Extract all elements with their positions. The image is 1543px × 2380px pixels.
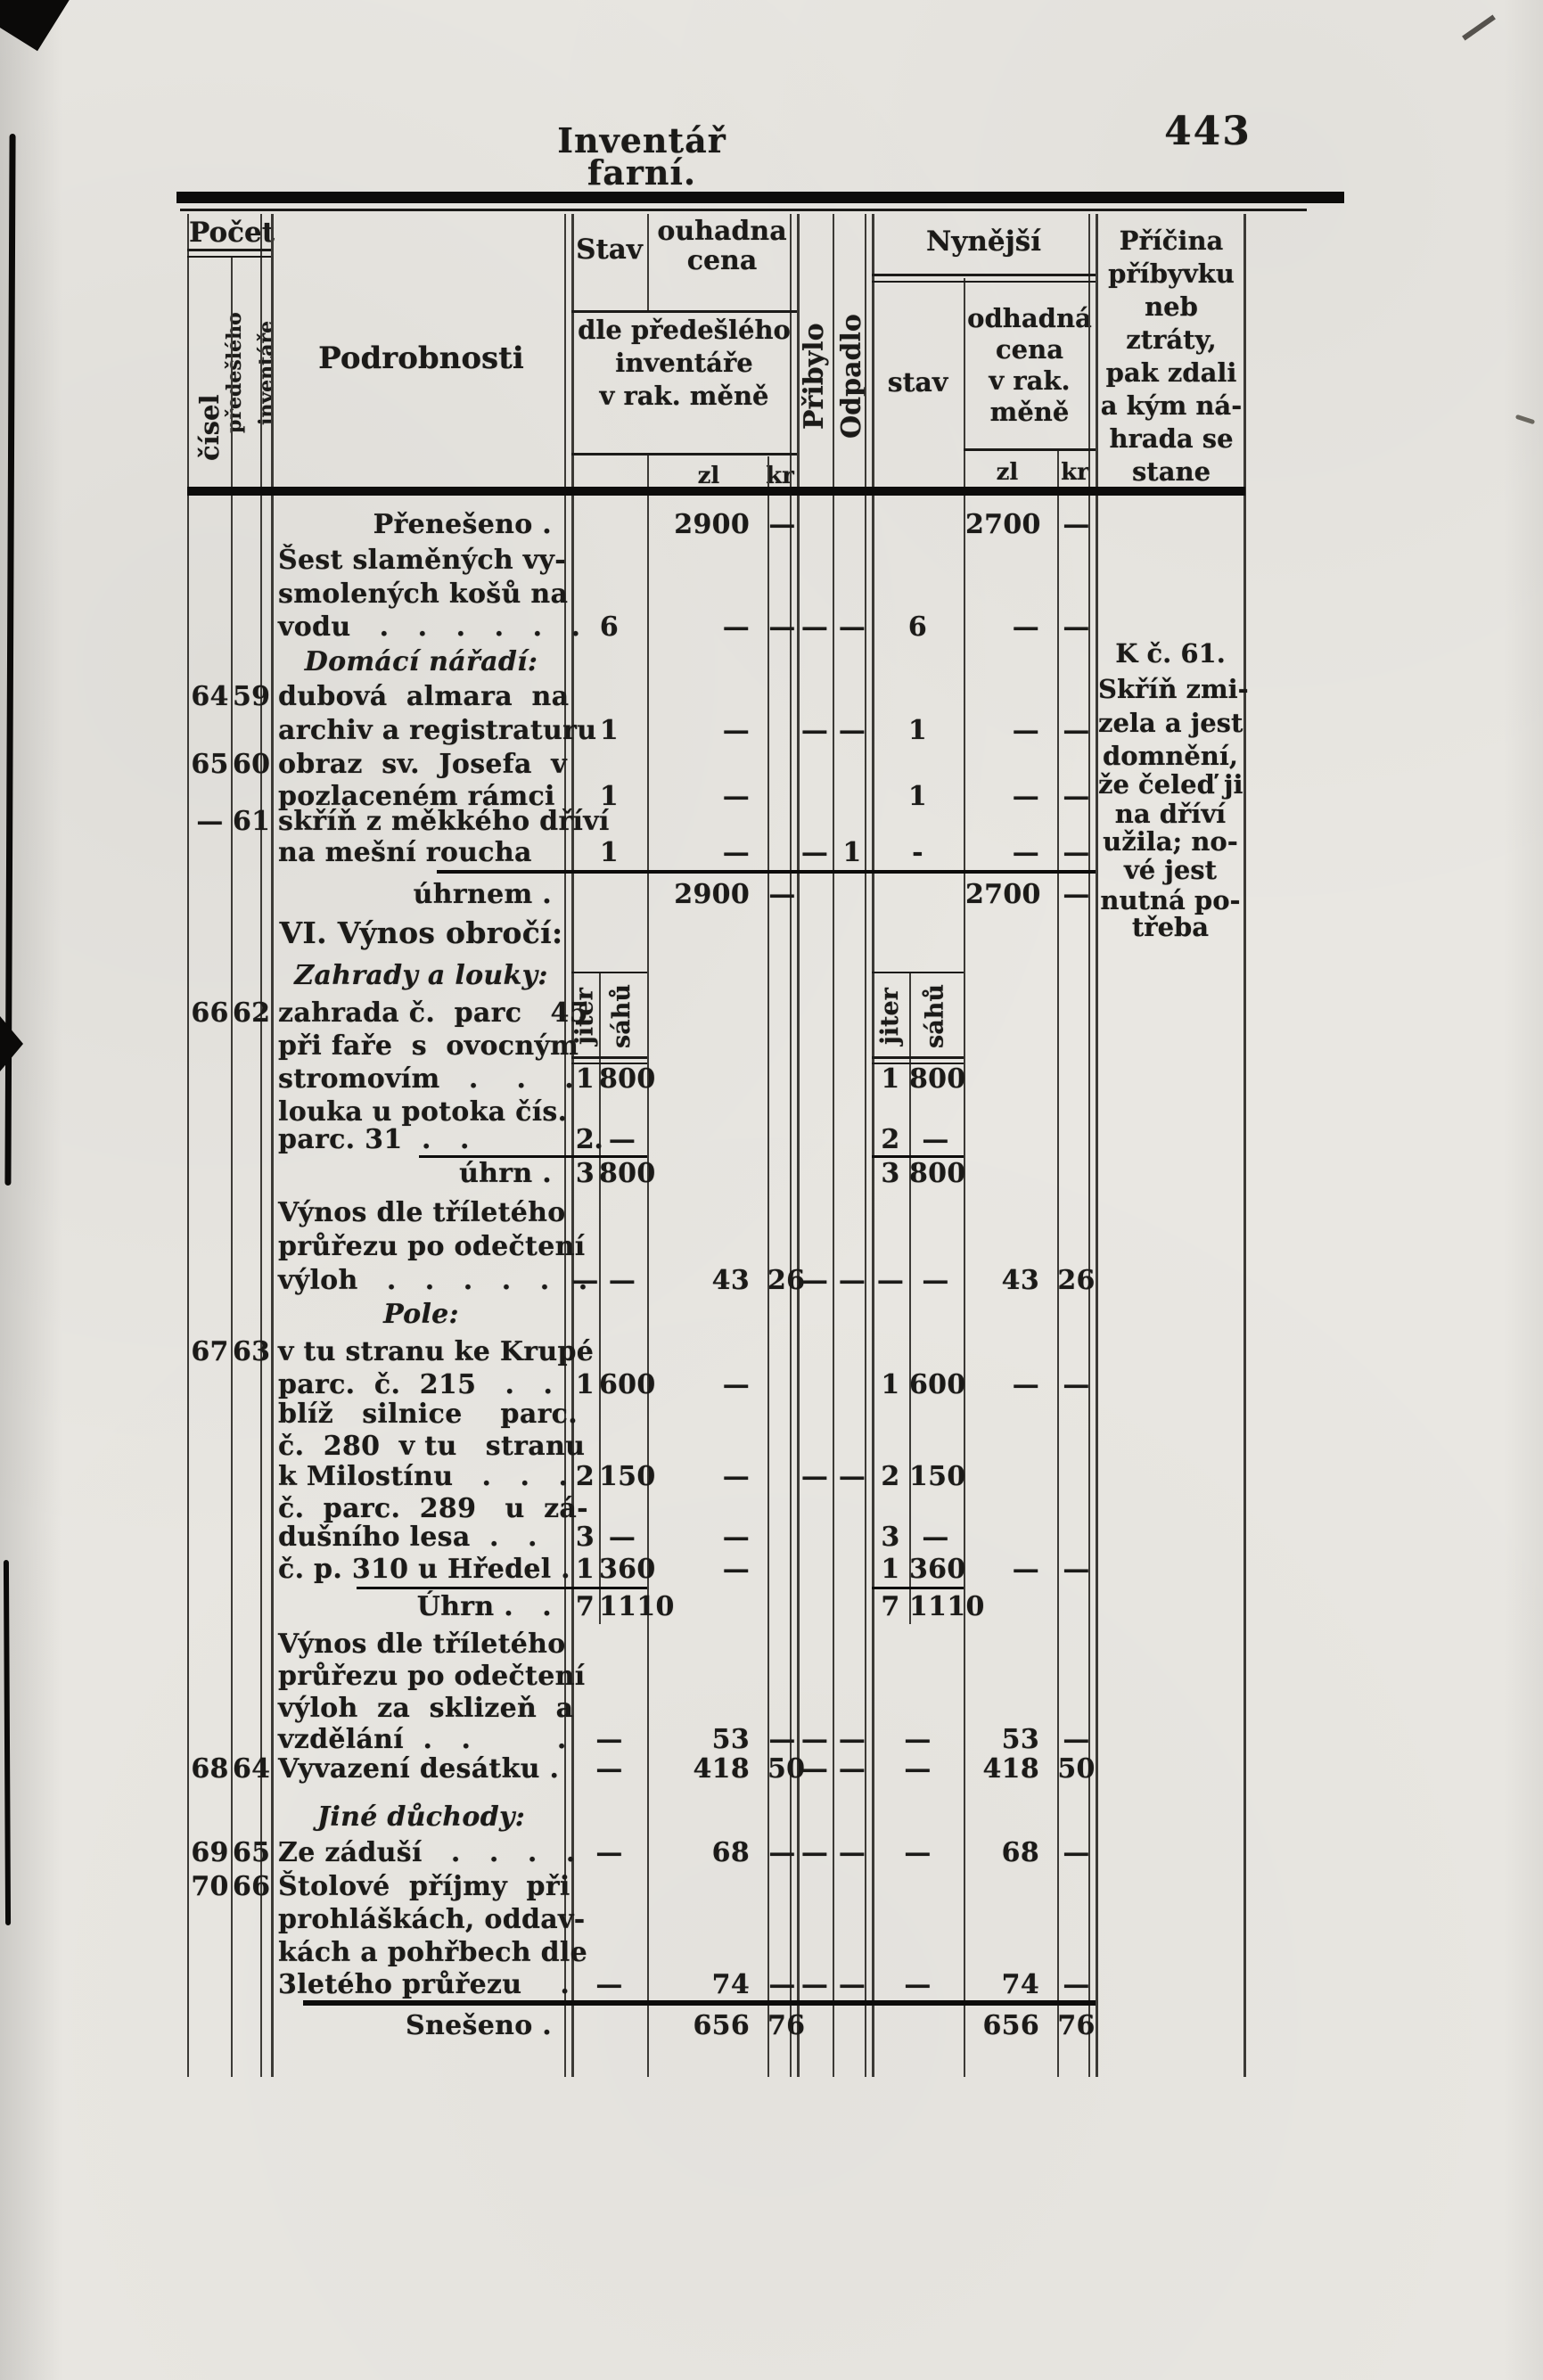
cell-os: 1 [573,838,645,868]
row-text: smolených košů na [278,579,564,610]
cell-nzl: 2700 [965,880,1055,910]
row-number: 64 [233,1754,269,1785]
scan-artifact-topright [1462,14,1496,40]
row-text: obraz sv. Josefa v [278,750,564,780]
table-rule-vertical [647,214,649,310]
unit-zl-new: zl [981,456,1034,488]
table-rule-horizontal [187,487,1245,496]
cell-osah: — [599,1266,645,1296]
note-line: zela a jest [1098,709,1243,738]
row-text: výloh za sklizeň a [278,1694,564,1724]
cell-od: — [833,1462,872,1492]
col-header-pricina: Příčinapříbyvkunebztráty,pak zdalia kým … [1099,225,1243,488]
cell-pb: — [797,1838,833,1868]
cell-nkr: — [1057,1725,1096,1755]
header-line: hrada se [1099,423,1243,455]
row-text: dubová almara na [278,682,564,712]
row-number: 59 [233,682,269,712]
row-text: vzdělání . . . [278,1725,564,1755]
cell-ns: - [874,838,962,868]
note-line: třeba [1098,913,1243,942]
row-number: 65 [189,750,231,780]
row-number: 66 [189,998,231,1029]
cell-od: — [833,612,872,643]
header-line: a kým ná- [1099,390,1243,423]
table-rule-horizontal [303,2000,1096,2006]
row-text: skříň z měkkého dříví [278,807,564,837]
row-number: — [189,807,231,837]
col-header-ouhadna-cena: ouhadna cena [649,217,795,275]
cell-ozl: — [649,716,766,746]
cell-oj: — [571,1266,599,1296]
cell-osah: 1110 [599,1592,645,1622]
cell-nzl: 2700 [965,510,1055,540]
row-text: prohláškách, oddav- [278,1905,564,1935]
table-rule-horizontal [176,192,1344,203]
row-text: zahrada č. parc 45 [278,998,564,1029]
row-text: Snešeno . [278,2011,564,2041]
cell-pb: — [797,612,833,643]
cell-ozl: — [649,1370,766,1400]
table-rule-horizontal [357,1587,647,1589]
cell-osah: 800 [599,1159,645,1189]
cell-okr: 50 [767,1754,797,1785]
cell-oj: 1 [571,1370,599,1400]
cell-os: — [573,1838,645,1868]
col-header-dle-predesleho: dle předešléhoinventářev rak. měně [573,314,795,413]
row-number: 63 [233,1337,269,1367]
header-line: příbyvku [1099,258,1243,291]
row-number: 70 [189,1872,231,1902]
cell-ozl: — [649,1462,766,1492]
cell-okr: — [767,1970,797,2000]
scanned-book-page: Inventář farní. 443 Počet čísel předešlé… [0,0,1543,2380]
cell-ozl: 2900 [649,510,766,540]
row-text: Šest slaměných vy- [278,546,564,576]
cell-nzl: 74 [965,1970,1055,2000]
cell-nsah: 600 [909,1370,962,1400]
cell-od: — [833,1725,872,1755]
cell-pb: — [797,838,833,868]
note-line: že čeleď ji [1098,770,1243,800]
row-text: parc. č. 215 . . [278,1370,564,1400]
table-rule-vertical [1057,448,1059,2077]
table-rule-horizontal [187,256,271,258]
row-text: parc. 31 . . . [278,1125,564,1155]
cell-pb: — [797,1462,833,1492]
row-text: kách a pohřbech dle [278,1938,564,1968]
cell-nzl: — [965,1555,1055,1585]
scan-artifact-spine-lower [4,1560,11,1925]
header-line: neb [1099,291,1243,324]
section-heading: VI. Výnos obročí: [278,918,564,948]
row-text: Vyvazení desátku . [278,1754,564,1785]
row-text: blíž silnice parc. [278,1399,564,1430]
table-rule-vertical [231,257,233,2077]
cell-ns: 1 [874,716,962,746]
col-header-odhadna-cena: odhadnácenav rak.měně [965,303,1094,428]
cell-nkr: — [1057,838,1096,868]
row-text: č. 280 v tu stranu [278,1432,564,1462]
cell-nkr: — [1057,1838,1096,1868]
cell-od: — [833,1970,872,2000]
cell-nsah: — [909,1266,962,1296]
cell-ozl: 656 [649,2011,766,2041]
cell-nkr: 26 [1057,1266,1096,1296]
row-text: č. parc. 289 u zá- [278,1494,564,1524]
cell-nzl: 43 [965,1266,1055,1296]
cell-os: 1 [573,716,645,746]
cell-ozl: 68 [649,1838,766,1868]
cell-ozl: 418 [649,1754,766,1785]
row-text: při faře s ovocným [278,1031,564,1062]
row-number: 64 [189,682,231,712]
cell-nj: 3 [872,1159,909,1189]
cell-nj: 2 [872,1125,909,1155]
cell-nzl: — [965,612,1055,643]
header-line: pak zdali [1099,357,1243,390]
cell-oj: 1 [571,1555,599,1585]
note-line: K č. 61. [1098,639,1243,669]
cell-osah: 600 [599,1370,645,1400]
row-text: Výnos dle tříletého [278,1198,564,1228]
cell-os: — [573,1725,645,1755]
cell-oj: 3 [571,1159,599,1189]
cell-nkr: 76 [1057,2011,1096,2041]
cell-osah: 360 [599,1555,645,1585]
cell-nsah: 150 [909,1462,962,1492]
row-text: dušního lesa . . [278,1522,564,1553]
col-header-podrobnosti: Podrobnosti [278,342,564,374]
header-line: odhadná [965,303,1094,334]
cell-ozl: — [649,612,766,643]
table-rule-horizontal [571,310,797,313]
cell-os: — [573,1754,645,1785]
table-rule-horizontal [571,1056,647,1059]
subcol-jiter-new: jiter [872,977,909,1055]
cell-pb: — [797,1970,833,2000]
cell-nzl: — [965,838,1055,868]
table-rule-horizontal [180,209,1307,211]
col-header-nynejsi: Nynější [874,226,1094,258]
cell-osah: 150 [599,1462,645,1492]
cell-nj: 7 [872,1592,909,1622]
table-rule-horizontal [872,274,1096,276]
cell-pb: — [797,1754,833,1785]
cell-pb: — [797,1266,833,1296]
col-header-pocet: Počet [189,217,269,249]
header-line: v rak. měně [573,380,795,413]
cell-od: — [833,1266,872,1296]
scan-artifact-rightedge [1515,414,1535,425]
cell-nkr: — [1057,1970,1096,2000]
cell-od: — [833,1838,872,1868]
cell-oj: 7 [571,1592,599,1622]
table-rule-horizontal [964,448,1096,451]
cell-osah: — [599,1125,645,1155]
note-line: Skříň zmi- [1098,675,1243,704]
row-text: louka u potoka čís. [278,1097,564,1128]
cell-nj: — [872,1266,909,1296]
row-text: průřezu po odečtení [278,1662,564,1692]
cell-os: — [573,1970,645,2000]
cell-ozl: 2900 [649,880,766,910]
row-text: úhrnem . [278,880,564,910]
row-text: č. p. 310 u Hředel . [278,1555,564,1585]
cell-ozl: 43 [649,1266,766,1296]
table-rule-horizontal [437,870,1096,874]
row-text: stromovím . . . [278,1064,564,1095]
col-header-predesleho-inventare: předešlého inventáře [234,260,267,486]
row-text: Štolové příjmy při [278,1872,564,1902]
cell-osah: — [599,1522,645,1553]
cell-nsah: — [909,1125,962,1155]
col-header-stav-new: stav [874,367,962,399]
cell-ozl: 74 [649,1970,766,2000]
note-line: vé jest [1098,856,1243,885]
cell-nzl: 418 [965,1754,1055,1785]
cell-nsah: 800 [909,1159,962,1189]
row-text: Ze záduší . . . . [278,1838,564,1868]
row-number: 69 [189,1838,231,1868]
cell-oj: 2 [571,1125,599,1155]
section-heading: Domácí nářadí: [278,647,564,677]
row-text: úhrn . [278,1159,564,1189]
section-heading: Pole: [278,1300,564,1330]
note-line: na dříví [1098,800,1243,829]
cell-okr: — [767,1725,797,1755]
cell-nkr: — [1057,782,1096,812]
cell-nkr: — [1057,716,1096,746]
row-text: Přenešeno . [278,510,564,540]
row-number: 66 [233,1872,269,1902]
row-text: vodu . . . . . . [278,612,564,643]
header-line: měně [965,397,1094,428]
cell-nkr: — [1057,1370,1096,1400]
section-heading: Jiné důchody: [278,1802,564,1833]
cell-ozl: — [649,1555,766,1585]
note-line: užila; no- [1098,827,1243,857]
note-line: domnění, [1098,742,1243,771]
header-line: cena [965,334,1094,365]
cell-pb: — [797,1725,833,1755]
cell-oj: 3 [571,1522,599,1553]
cell-pb: — [797,716,833,746]
cell-okr: — [767,510,797,540]
cell-oj: 2 [571,1462,599,1492]
subcol-sahu-old: sáhů [601,977,644,1055]
header-line: Příčina [1099,225,1243,258]
cell-ozl: 53 [649,1725,766,1755]
col-header-stav-old: Stav [573,234,645,266]
cell-nj: 1 [872,1064,909,1095]
cell-os: 6 [573,612,645,643]
cell-nkr: — [1057,1555,1096,1585]
row-number: 62 [233,998,269,1029]
cell-nsah: — [909,1522,962,1553]
row-text: průřezu po odečtení [278,1232,564,1262]
table-rule-horizontal [187,249,271,251]
subcol-sahu-new: sáhů [911,977,960,1055]
row-text: k Milostínu . . . [278,1462,564,1492]
cell-nzl: — [965,1370,1055,1400]
cell-nsah: 360 [909,1555,962,1585]
row-text: výloh . . . . . . [278,1266,564,1296]
cell-okr: 76 [767,2011,797,2041]
cell-nj: 3 [872,1522,909,1553]
cell-nj: 1 [872,1370,909,1400]
row-number: 61 [233,807,269,837]
cell-nkr: — [1057,880,1096,910]
page-number: 443 [1159,116,1257,148]
header-line: ztráty, [1099,324,1243,357]
cell-okr: — [767,880,797,910]
cell-ns: — [874,1970,962,2000]
cell-nzl: 68 [965,1838,1055,1868]
table-rule-horizontal [571,972,647,973]
cell-nkr: — [1057,612,1096,643]
cell-nj: 1 [872,1555,909,1585]
row-number: 60 [233,750,269,780]
row-number: 67 [189,1337,231,1367]
header-line: v rak. [965,365,1094,397]
row-number: 68 [189,1754,231,1785]
row-text: na mešní roucha [278,838,564,868]
table-rule-horizontal [872,972,964,973]
header-line: dle předešlého [573,314,795,347]
cell-okr: — [767,1838,797,1868]
table-rule-horizontal [872,1587,964,1589]
header-line: stane [1099,455,1243,488]
row-text: v tu stranu ke Krupé [278,1337,564,1367]
cell-ns: — [874,1754,962,1785]
cell-nsah: 1110 [909,1592,962,1622]
section-heading: Zahrady a louky: [278,961,564,991]
cell-oj: 1 [571,1064,599,1095]
cell-nzl: 656 [965,2011,1055,2041]
table-rule-horizontal [571,453,797,455]
header-line: inventáře [573,347,795,380]
row-text: 3letého průřezu . [278,1970,564,2000]
cell-od: — [833,716,872,746]
table-rule-horizontal [872,1056,964,1059]
cell-nj: 2 [872,1462,909,1492]
cell-ns: — [874,1725,962,1755]
row-text: archiv a registraturu [278,716,564,746]
col-header-pribylo: Přibylo [797,267,833,486]
cell-od: — [833,1754,872,1785]
cell-osah: 800 [599,1064,645,1095]
cell-ns: — [874,1838,962,1868]
cell-nzl: — [965,782,1055,812]
row-text: Výnos dle tříletého [278,1629,564,1660]
cell-ozl: — [649,1522,766,1553]
cell-okr: — [767,612,797,643]
page-title: Inventář farní. [517,125,767,189]
cell-ns: 1 [874,782,962,812]
cell-okr: 26 [767,1266,797,1296]
row-number: 65 [233,1838,269,1868]
cell-ozl: — [649,838,766,868]
row-text: Úhrn . . [278,1592,564,1622]
scan-artifact-corner [0,0,70,51]
cell-ozl: — [649,782,766,812]
cell-nzl: 53 [965,1725,1055,1755]
cell-ns: 6 [874,612,962,643]
cell-nsah: 800 [909,1064,962,1095]
cell-nkr: — [1057,510,1096,540]
cell-od: 1 [833,838,872,868]
cell-nkr: 50 [1057,1754,1096,1785]
cell-nzl: — [965,716,1055,746]
table-rule-horizontal [872,281,1096,283]
